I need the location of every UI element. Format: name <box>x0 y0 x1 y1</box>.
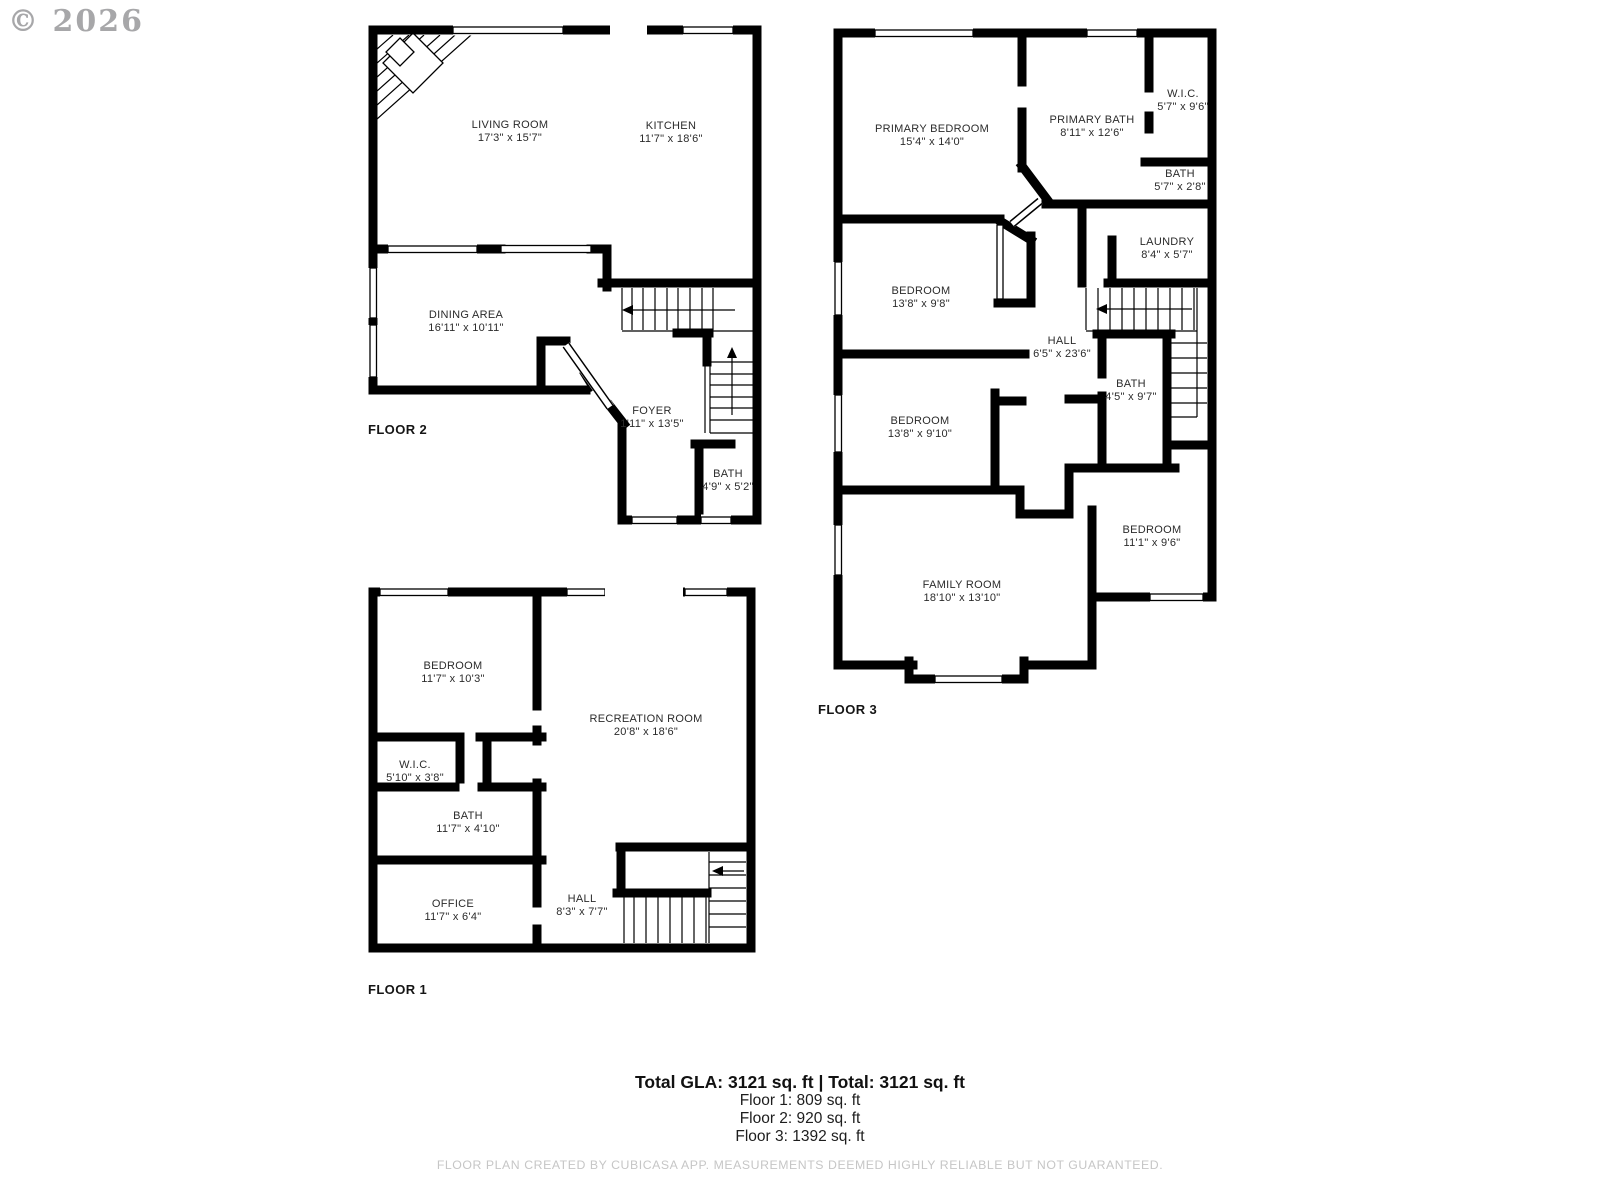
total-gla-line: Total GLA: 3121 sq. ft | Total: 3121 sq.… <box>635 1072 965 1093</box>
window-icon <box>368 24 734 526</box>
floor3-area-line: Floor 3: 1392 sq. ft <box>735 1128 864 1146</box>
room-label-primary-bedroom: PRIMARY BEDROOM15'4" x 14'0" <box>875 123 989 149</box>
room-label-living-room: LIVING ROOM17'3" x 15'7" <box>472 119 549 145</box>
door-opening-icon <box>563 343 613 409</box>
room-label-bath-f2: BATH4'9" x 5'2" <box>702 468 753 494</box>
floor3-label: FLOOR 3 <box>818 702 877 717</box>
floor2-walls <box>368 24 758 526</box>
closet-door-icon <box>997 225 1003 299</box>
room-label-office: OFFICE11'7" x 6'4" <box>425 898 482 924</box>
door-opening-icon <box>1010 199 1042 227</box>
room-label-bath-mid-f3: BATH4'5" x 9'7" <box>1105 378 1156 404</box>
room-label-recreation-room: RECREATION ROOM20'8" x 18'6" <box>589 713 702 739</box>
room-label-laundry: LAUNDRY8'4" x 5'7" <box>1140 236 1194 262</box>
room-label-bedroom2-f3: BEDROOM13'8" x 9'10" <box>888 415 952 441</box>
room-label-bath-small-f3: BATH5'7" x 2'8" <box>1154 168 1205 194</box>
wall-opening <box>501 246 591 253</box>
stair-direction-arrow <box>727 347 737 358</box>
floor1-area-line: Floor 1: 809 sq. ft <box>740 1092 861 1110</box>
room-label-foyer: FOYER1'11" x 13'5" <box>620 405 683 431</box>
room-label-wic-f3: W.I.C.5'7" x 9'6" <box>1157 88 1208 114</box>
room-label-hall-f1: HALL8'3" x 7'7" <box>556 893 607 919</box>
floorplan-drawing <box>0 0 1600 1200</box>
floor2-area-line: Floor 2: 920 sq. ft <box>740 1110 861 1128</box>
room-label-bedroom3-f3: BEDROOM11'1" x 9'6" <box>1123 524 1182 550</box>
room-label-primary-bath: PRIMARY BATH8'11" x 12'6" <box>1050 114 1135 140</box>
room-label-bedroom-f1: BEDROOM11'7" x 10'3" <box>421 660 484 686</box>
room-label-family-room: FAMILY ROOM18'10" x 13'10" <box>923 579 1002 605</box>
stair-direction-arrow <box>622 305 633 315</box>
room-label-kitchen: KITCHEN11'7" x 18'6" <box>639 120 702 146</box>
room-label-hall-f3: HALL6'5" x 23'6" <box>1033 335 1091 361</box>
floor2-label: FLOOR 2 <box>368 422 427 437</box>
floorplan-page: © 2026 <box>0 0 1600 1200</box>
room-label-dining-area: DINING AREA16'11" x 10'11" <box>428 309 503 335</box>
room-label-bath-f1: BATH11'7" x 4'10" <box>436 810 499 836</box>
floor1-label: FLOOR 1 <box>368 982 427 997</box>
disclaimer-footer: FLOOR PLAN CREATED BY CUBICASA APP. MEAS… <box>437 1158 1163 1172</box>
room-label-wic-f1: W.I.C.5'10" x 3'8" <box>386 759 444 785</box>
room-label-bedroom1-f3: BEDROOM13'8" x 9'8" <box>892 285 951 311</box>
